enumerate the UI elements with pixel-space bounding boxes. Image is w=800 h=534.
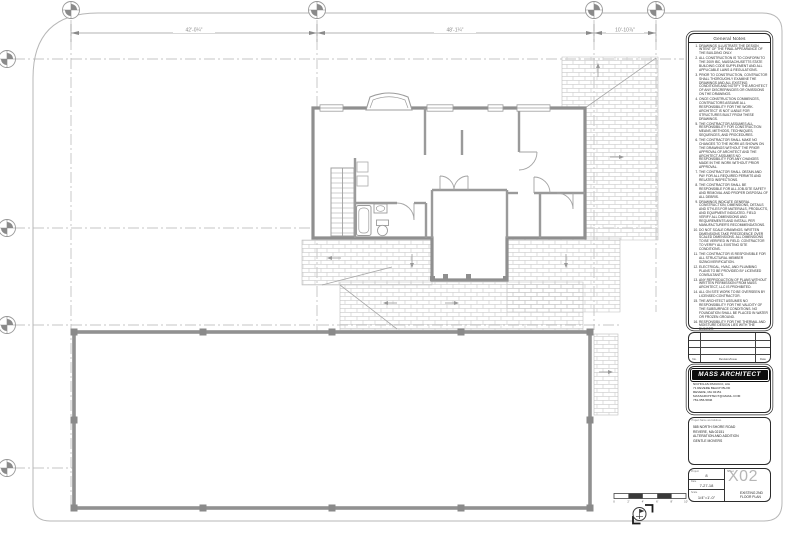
general-notes-panel: General Notes DRAWINGS ILLUSTRATE THE DE…: [688, 33, 771, 329]
general-note-item: THE CONTRACTOR SHALL MAKE NO CHANGES TO …: [699, 139, 768, 170]
project-client: GENTLE MOVERS: [693, 439, 770, 444]
titleblock-info: Project 8 Date 7-27-18 Scale 1/4"=1'-0" …: [688, 468, 771, 502]
dimension-label: 42'-0¼": [186, 28, 203, 34]
firm-name: MASS ARCHITECT: [691, 369, 769, 381]
graphic-scale-bar: 0 2' 4' 6' 8' 10': [613, 494, 688, 504]
scale-cell: Scale 1/4"=1'-0": [689, 490, 724, 501]
svg-text:8': 8': [671, 500, 674, 504]
sheet-title: EXISTING 2ND FLOOR PLAN: [740, 491, 763, 499]
svg-text:4': 4': [642, 500, 645, 504]
sheet-number-cell: Sheet X02 EXISTING 2ND FLOOR PLAN: [725, 469, 770, 501]
project-block: Project Name and Address 585 NORTH SHORE…: [688, 417, 771, 465]
dimension-labels: 42'-0¼" 48'-1¼" 10'-10⅞": [173, 25, 644, 34]
general-note-item: THE CONTRACTOR ASSUMES ALL RESPONSIBILIT…: [699, 123, 768, 139]
general-note-item: ELECTRICAL, HVAC, AND PLUMBING PLANS TO …: [699, 266, 768, 278]
revision-date-header: Date: [755, 354, 770, 362]
sheet-number: X02: [728, 468, 758, 486]
revision-cell: [700, 347, 755, 354]
revision-no-header: No.: [689, 354, 700, 362]
revision-cell: [755, 340, 770, 347]
architect-block: MASS ARCHITECT NICHOLAS PADUCCI, AIA 71 …: [688, 366, 771, 413]
project-block-label: Project Name and Address: [692, 419, 771, 422]
revision-cell: [700, 340, 755, 347]
general-note-item: RESPONSIBILITY FOR THE THERMAL AND MOIST…: [699, 321, 768, 333]
general-note-item: DRAWINGS INDICATE GENERAL CONSTRUCTION, …: [699, 201, 768, 228]
general-note-item: ALL CONSTRUCTION IS TO CONFORM TO THE 20…: [699, 57, 768, 73]
toilet-bowl: [378, 225, 388, 235]
revision-cell: [689, 340, 700, 347]
revision-cell: [689, 347, 700, 354]
general-note-item: ANY REPRODUCTION OF PLANS WITHOUT WRITTE…: [699, 279, 768, 291]
project-number-cell: Project 8: [689, 469, 724, 480]
general-note-item: PRIOR TO CONSTRUCTION, CONTRACTOR SHALL …: [699, 74, 768, 97]
svg-text:6': 6': [656, 500, 659, 504]
svg-text:0: 0: [613, 500, 615, 504]
revision-cell: [689, 333, 700, 340]
project-number-value: 8: [689, 473, 724, 478]
general-note-item: THE CONTRACTOR SHALL BE RESPONSIBLE FOR …: [699, 184, 768, 200]
architect-phone: 781-656-5846: [693, 398, 770, 402]
dimension-label: 48'-1¼": [447, 28, 464, 34]
dimension-lines: [71, 24, 656, 42]
toilet-tank: [377, 220, 389, 226]
general-note-item: THE CONTRACTOR IS RESPONSIBLE FOR ALL ST…: [699, 253, 768, 265]
general-notes-list: DRAWINGS ILLUSTRATE THE DESIGN INTENT OF…: [691, 45, 768, 333]
lower-building: [71, 329, 594, 512]
revision-table: No. Revision/Issue Date: [688, 332, 771, 363]
svg-text:10': 10': [684, 500, 688, 504]
revision-cell: [755, 347, 770, 354]
date-cell: Date 7-27-18: [689, 480, 724, 491]
general-note-item: ALL ON SITE WORK TO BE OVERSEEN BY LICEN…: [699, 291, 768, 299]
scale-value: 1/4"=1'-0": [689, 495, 724, 500]
drawing-sheet: 42'-0¼" 48'-1¼" 10'-10⅞": [0, 0, 800, 534]
svg-text:2': 2': [627, 500, 630, 504]
general-note-item: THE CONTRACTOR SHALL OBTAIN AND PAY FOR …: [699, 171, 768, 183]
general-note-item: DO NOT SCALE DRAWINGS. WRITTEN DIMENSION…: [699, 229, 768, 252]
scale-label: Scale: [691, 491, 697, 494]
date-value: 7-27-18: [689, 483, 724, 488]
revision-cell: [700, 333, 755, 340]
general-note-item: THE ARCHITECT ASSUMES NO RESPONSIBILITY …: [699, 300, 768, 319]
floor-plan-drawing: 42'-0¼" 48'-1¼" 10'-10⅞": [0, 0, 800, 534]
general-note-item: DRAWINGS ILLUSTRATE THE DESIGN INTENT OF…: [699, 45, 768, 57]
revision-cell: [755, 333, 770, 340]
general-note-item: ONCE CONSTRUCTION COMMENCES, CONTRACTORS…: [699, 98, 768, 121]
revision-description-header: Revision/Issue: [700, 354, 755, 362]
general-notes-title: General Notes: [689, 34, 770, 43]
dimension-label: 10'-10⅞": [615, 28, 635, 34]
bay-window: [366, 93, 412, 110]
